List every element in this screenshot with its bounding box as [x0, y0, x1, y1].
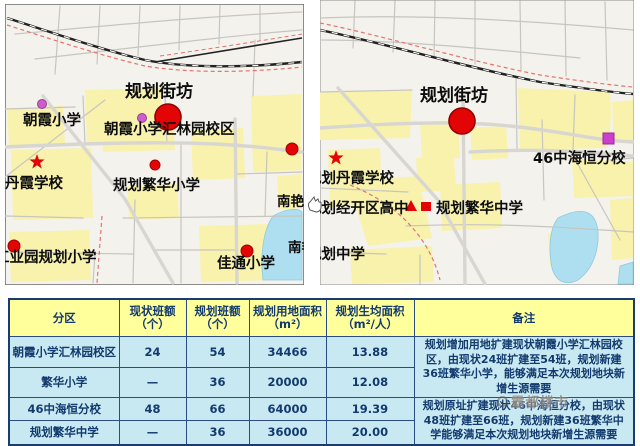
col-header-current-classes: 现状班额（个） — [119, 299, 186, 337]
col-header-remarks: 备注 — [414, 299, 634, 337]
cursor-hand-icon — [306, 194, 324, 214]
marker-red-square — [421, 202, 431, 211]
planning-map-left: 规划街坊 朝霞小学 朝霞小学汇林园校区 丹霞学校 规划繁华小学 工业园规划小学 … — [5, 4, 304, 285]
map-label-planned-jingkaiqu-high-school: 规划经开区高中 — [320, 199, 409, 217]
map-label-industrial-park-planned-primary: 工业园规划小学 — [5, 248, 97, 266]
cell-current-classes: — — [119, 367, 186, 398]
cell-school-name: 繁华小学 — [9, 367, 119, 398]
cell-school-name: 46中海恒分校 — [9, 398, 119, 421]
planning-map-right: 规划街坊 46中海恒分校 规划丹霞学校 规划经开区高中 规划繁华中学 规划中学 — [320, 0, 634, 285]
marker-magenta-square — [603, 133, 614, 144]
cell-remark-secondary: 规划原址扩建现状46中海恒分校，由现状48班扩建至66班，规划新建36班繁华中学… — [414, 398, 634, 445]
cell-school-name: 朝霞小学汇林园校区 — [9, 337, 119, 368]
map-label-nanyan-1: 南艳 — [277, 193, 304, 210]
map-label-planned-block: 规划街坊 — [420, 85, 488, 106]
cell-per-capita-area: 13.88 — [326, 337, 414, 368]
cell-land-area: 34466 — [249, 337, 326, 368]
cell-per-capita-area: 12.08 — [326, 367, 414, 398]
cell-current-classes: 24 — [119, 337, 186, 368]
cell-land-area: 64000 — [249, 398, 326, 421]
cell-planned-classes: 36 — [186, 367, 249, 398]
col-header-planned-land-area: 规划用地面积（m²） — [249, 299, 326, 337]
col-header-district: 分区 — [9, 299, 119, 337]
map-label-planned-fanhua-middle-school: 规划繁华中学 — [436, 199, 523, 217]
col-header-per-student-area: 规划生均面积（m²/人） — [326, 299, 414, 337]
table-row: 46中海恒分校 48 66 64000 19.39 规划原址扩建现状46中海恒分… — [9, 398, 634, 421]
table-header-row: 分区 现状班额（个） 规划班额（个） 规划用地面积（m²） 规划生均面积（m²/… — [9, 299, 634, 337]
map-label-planned-danxia-school: 规划丹霞学校 — [320, 169, 394, 187]
map-label-zhaoxia-huilinyuan-campus: 朝霞小学汇林园校区 — [104, 120, 235, 138]
map-label-nanyan-2: 南艳 — [288, 239, 304, 256]
school-planning-table: 分区 现状班额（个） 规划班额（个） 规划用地面积（m²） 规划生均面积（m²/… — [8, 298, 635, 446]
cell-land-area: 20000 — [249, 367, 326, 398]
map-label-danxia-school: 丹霞学校 — [5, 174, 63, 192]
cell-current-classes: 48 — [119, 398, 186, 421]
table-row: 朝霞小学汇林园校区 24 54 34466 13.88 规划增加用地扩建现状朝霞… — [9, 337, 634, 368]
map-label-jiatong-primary: 佳通小学 — [217, 254, 275, 272]
col-header-planned-classes: 规划班额（个） — [186, 299, 249, 337]
map-label-zhaoxia-primary: 朝霞小学 — [23, 111, 81, 129]
map-label-no46-haiheng-branch: 46中海恒分校 — [533, 149, 626, 167]
marker-planned-block-red-circle — [449, 108, 475, 134]
cell-remark-primary: 规划增加用地扩建现状朝霞小学汇林园校区，由现状24班扩建至54班，规划新建36班… — [414, 337, 634, 398]
cell-planned-classes: 66 — [186, 398, 249, 421]
cell-per-capita-area: 19.39 — [326, 398, 414, 421]
map-label-planned-fanhua-primary: 规划繁华小学 — [113, 176, 200, 194]
map-label-planned-block: 规划街坊 — [125, 81, 193, 102]
cell-planned-classes: 54 — [186, 337, 249, 368]
map-label-planned-middle-school: 规划中学 — [320, 245, 365, 263]
